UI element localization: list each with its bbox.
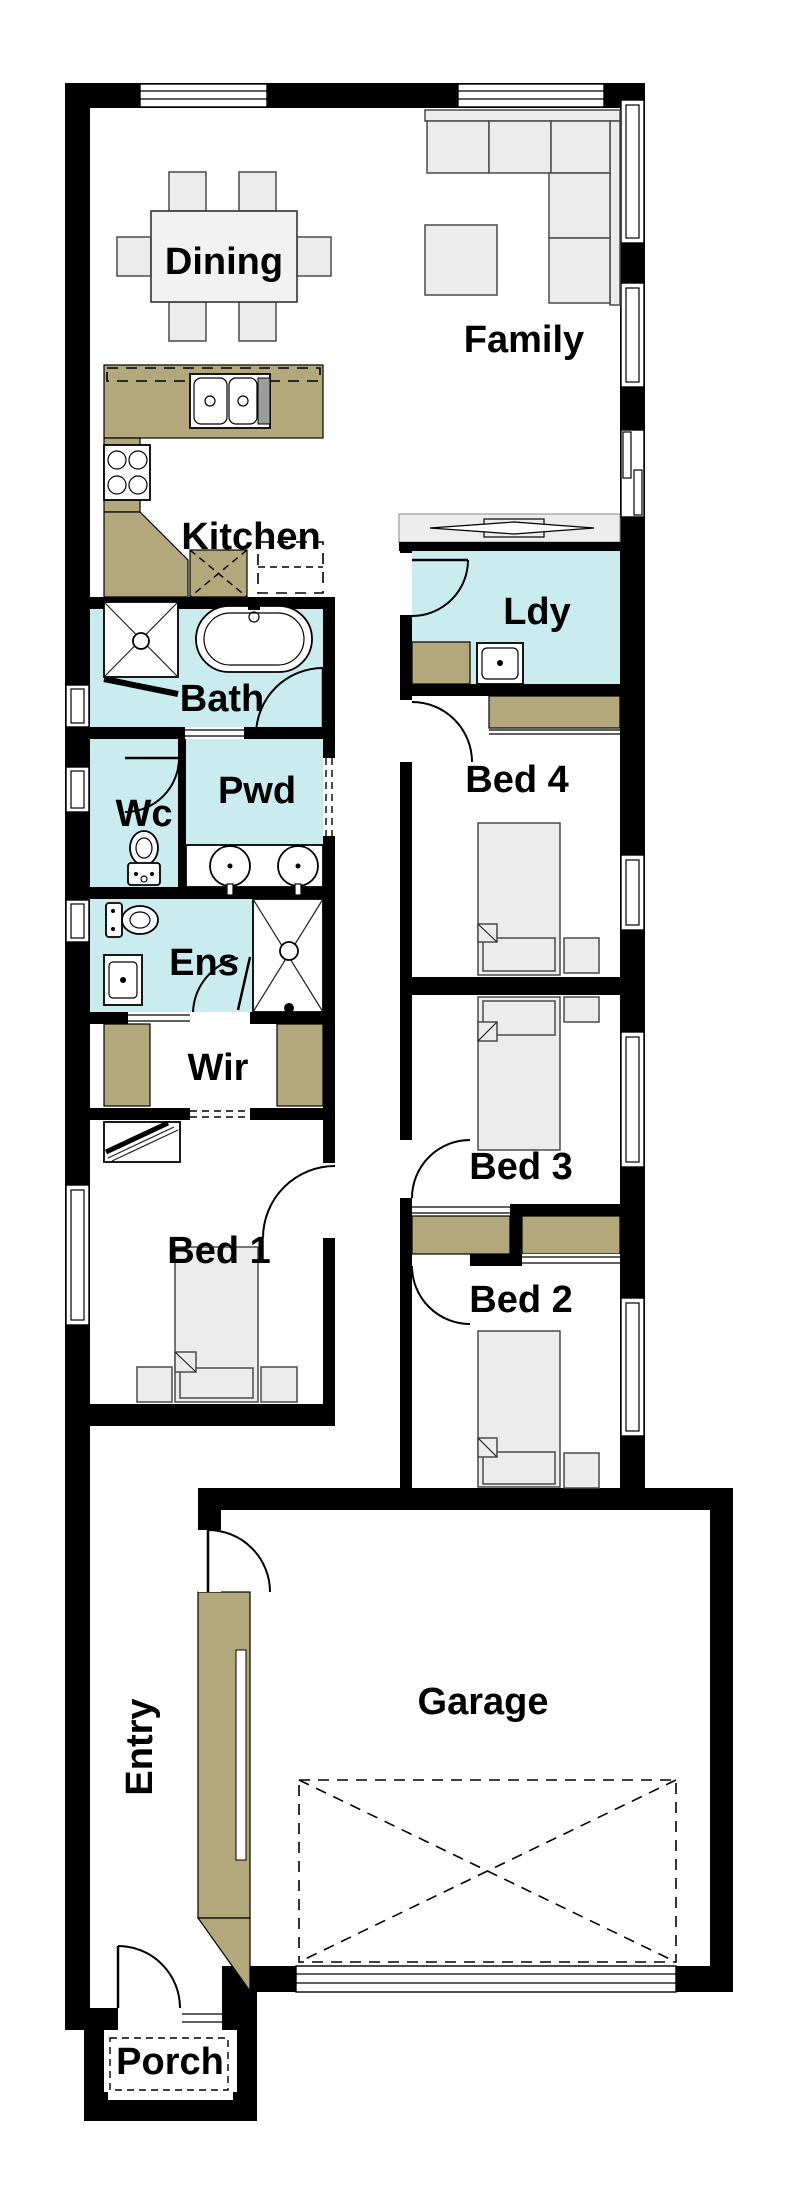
wall: [399, 542, 620, 551]
porch-wall: [84, 2100, 257, 2121]
bed3-window: [621, 1032, 644, 1167]
ldy-trough: [477, 643, 523, 684]
garage-floor: [221, 1510, 710, 1968]
porch-post: [233, 2092, 245, 2106]
wall: [710, 1488, 733, 1992]
bed4-pillow: [483, 938, 555, 971]
label-kitchen: Kitchen: [181, 516, 320, 558]
family-side-window: [621, 100, 644, 243]
label-bath: Bath: [180, 678, 264, 720]
wir-robe-right: [277, 1024, 323, 1106]
label-bed3: Bed 3: [469, 1146, 572, 1188]
wall: [676, 1966, 733, 1992]
bed2-window: [621, 1298, 644, 1436]
wall: [250, 1012, 335, 1024]
coffee-table: [425, 225, 497, 295]
label-ens: Ens: [169, 942, 239, 984]
wir-robe-left: [104, 1024, 150, 1106]
label-wc: Wc: [116, 793, 173, 835]
floor-plan-drawing: Dining Family Kitchen Ldy Bath Wc Pwd Be…: [0, 0, 799, 2204]
dining-chair: [297, 237, 331, 276]
bedside-table: [564, 997, 599, 1022]
kitchen-sink: [190, 374, 270, 428]
wall: [250, 1108, 335, 1120]
label-ldy: Ldy: [503, 591, 571, 633]
wall: [65, 1108, 190, 1120]
wc-window: [66, 767, 89, 812]
bed1-window: [66, 1185, 89, 1325]
bedside-table: [137, 1367, 172, 1402]
dining-chair: [239, 302, 276, 341]
dining-chair: [169, 302, 206, 341]
blade-wall-recess: [236, 1650, 246, 1860]
label-wir: Wir: [188, 1047, 249, 1089]
wall: [65, 727, 185, 739]
toilet: [128, 831, 160, 885]
wall: [323, 597, 335, 758]
bed1-linen: [104, 1122, 180, 1162]
bedside-table: [261, 1367, 297, 1402]
wall: [400, 1198, 412, 1488]
sofa-seat: [427, 121, 489, 173]
wall: [198, 1488, 733, 1510]
family-side-window-2: [621, 283, 644, 387]
bed2-robe: [522, 1216, 620, 1266]
ldy-sliding-door: [621, 430, 644, 517]
kitchen-cooktop: [104, 445, 150, 500]
floor-plan: Dining Family Kitchen Ldy Bath Wc Pwd Be…: [0, 0, 799, 2204]
bath-recess-opening: [185, 727, 244, 739]
ldy-cabinet: [412, 642, 470, 684]
ens-window: [66, 900, 89, 942]
label-family: Family: [464, 319, 584, 361]
wall: [510, 1204, 620, 1216]
wall: [400, 684, 620, 696]
label-bed4: Bed 4: [465, 759, 568, 801]
pwd-fixtures: [186, 845, 323, 895]
sofa-seat: [551, 121, 610, 173]
wall: [400, 762, 412, 1140]
family-top-window: [458, 84, 604, 107]
dining-chair: [117, 237, 151, 276]
wall: [323, 1238, 335, 1426]
label-entry: Entry: [119, 1698, 161, 1795]
label-pwd: Pwd: [218, 770, 296, 812]
bedside-table: [564, 1453, 599, 1488]
wall: [198, 1510, 221, 1530]
label-garage: Garage: [418, 1681, 549, 1723]
dining-chair: [169, 172, 206, 211]
garage-door: [296, 1966, 676, 1992]
toilet: [106, 903, 158, 937]
ens-cased-opening: [128, 1012, 190, 1024]
bath-window: [66, 685, 89, 727]
dining-chair: [239, 172, 276, 211]
label-porch: Porch: [116, 2041, 224, 2083]
sofa-back: [610, 121, 620, 305]
bed4-window: [621, 855, 644, 930]
wall: [65, 2008, 118, 2030]
bed3-robe: [412, 1204, 510, 1254]
label-bed1: Bed 1: [167, 1230, 270, 1272]
bed4-robe: [489, 696, 620, 728]
sofa-back: [425, 110, 620, 121]
wall: [65, 1404, 335, 1426]
wall: [470, 1254, 522, 1266]
ens-vanity: [104, 955, 142, 1005]
dining-window: [140, 84, 267, 107]
sofa-seat: [489, 121, 551, 173]
pwd-cavity-slider: [323, 758, 335, 836]
ldy-fixtures: [412, 642, 523, 684]
sofa-seat: [549, 238, 610, 303]
wc-fixtures: [128, 831, 160, 885]
label-bed2: Bed 2: [469, 1279, 572, 1321]
wall: [65, 83, 90, 2030]
bedside-table: [564, 938, 599, 973]
sofa-seat: [549, 173, 610, 238]
hall-floor: [335, 597, 400, 1488]
porch-post: [96, 2092, 108, 2106]
wall: [222, 2008, 257, 2030]
wall: [65, 1012, 128, 1024]
wall: [400, 977, 620, 995]
wir-opening: [190, 1108, 250, 1120]
ens-shower: [253, 899, 323, 1013]
label-dining: Dining: [165, 241, 283, 283]
wall: [222, 1966, 296, 1992]
